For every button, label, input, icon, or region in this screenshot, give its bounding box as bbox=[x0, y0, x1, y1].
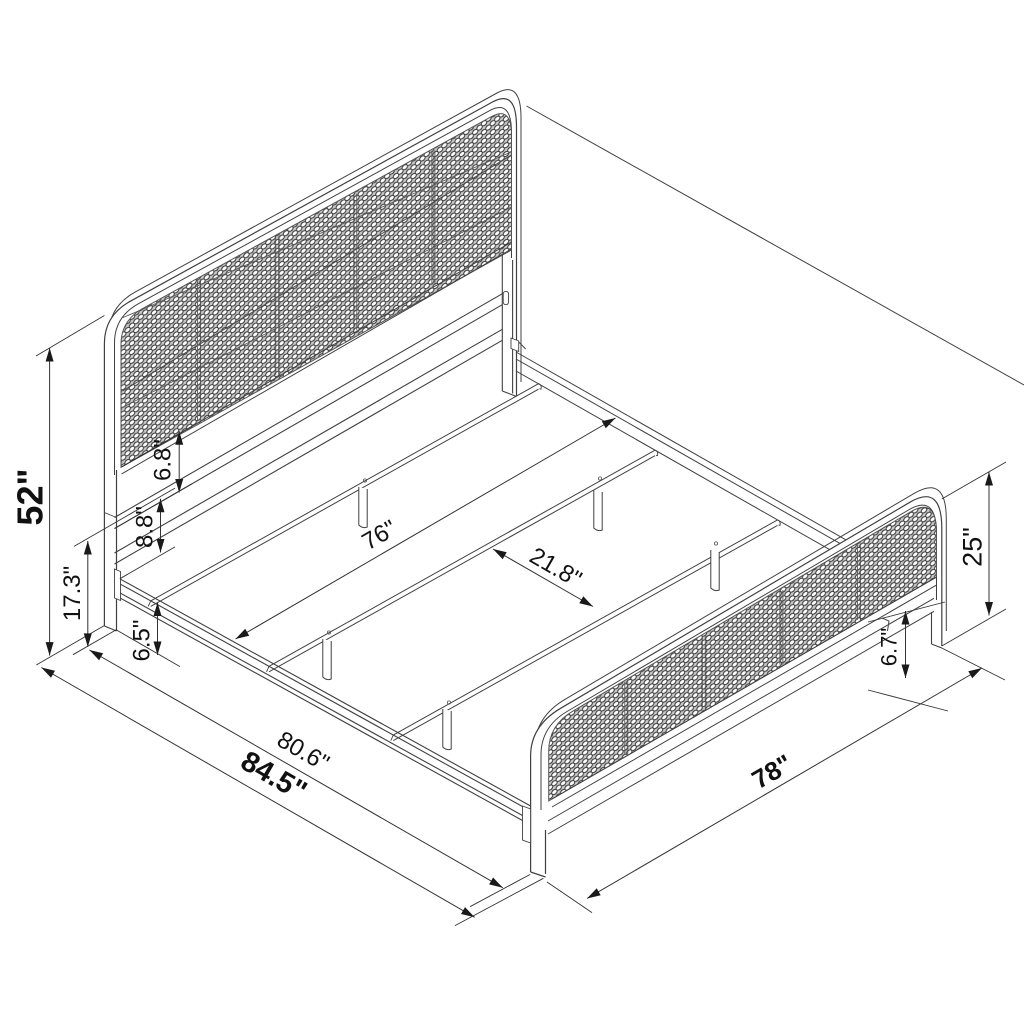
svg-text:8.8": 8.8" bbox=[132, 506, 159, 548]
svg-text:25": 25" bbox=[958, 527, 988, 567]
svg-text:6.8": 6.8" bbox=[150, 439, 177, 481]
svg-text:6.5": 6.5" bbox=[129, 620, 156, 662]
svg-text:52": 52" bbox=[10, 468, 51, 525]
svg-text:17.3": 17.3" bbox=[59, 566, 86, 621]
svg-text:6.7": 6.7" bbox=[877, 628, 902, 666]
